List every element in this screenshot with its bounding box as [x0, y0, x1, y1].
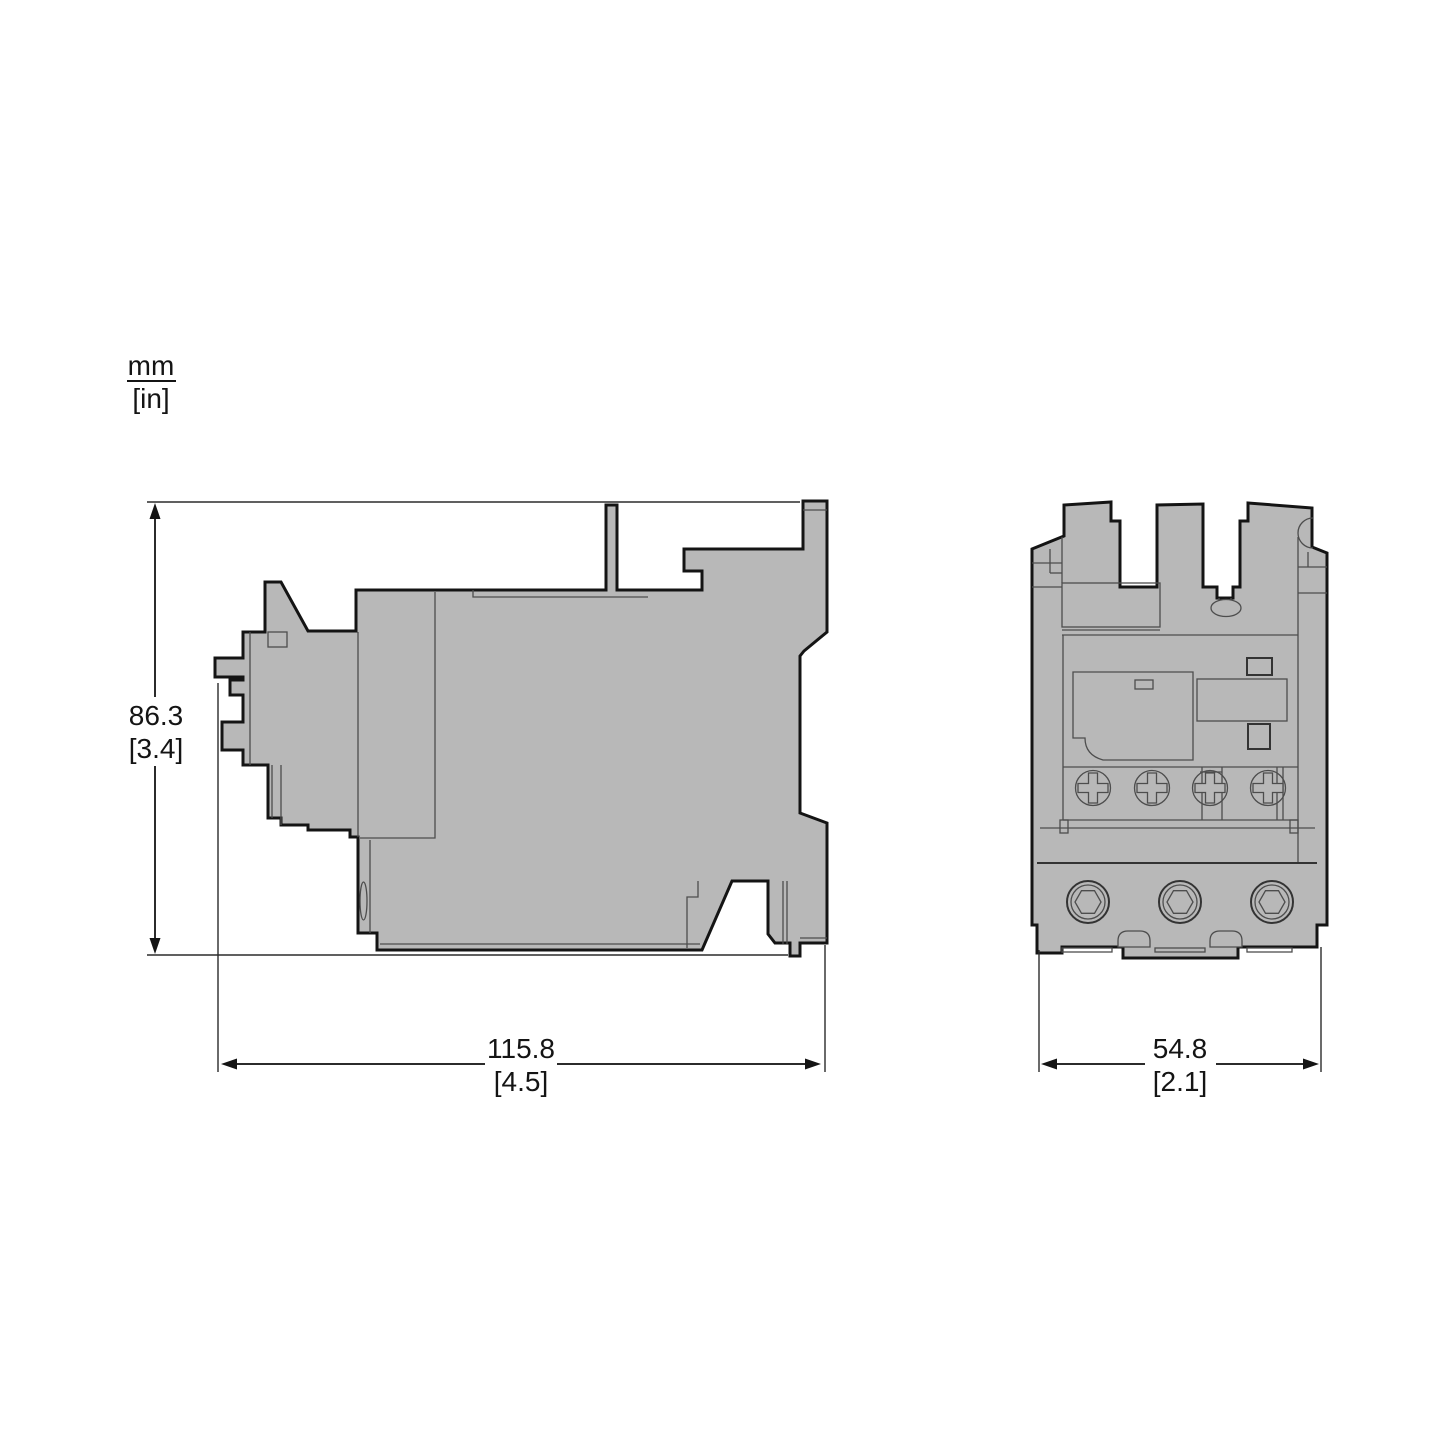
height-dim-in: [3.4] — [129, 733, 183, 764]
front-width-dimension: 54.8 [2.1] — [1039, 947, 1321, 1097]
height-dim-mm: 86.3 — [129, 700, 184, 731]
phillips-screw — [1135, 771, 1170, 806]
phillips-screw — [1076, 771, 1111, 806]
front-bottom-bump-left — [1118, 931, 1150, 947]
arrow-left-icon — [221, 1059, 237, 1070]
phillips-screw — [1193, 771, 1228, 806]
front-top-oval — [1211, 600, 1241, 617]
front-width-dim-mm: 54.8 — [1153, 1033, 1208, 1064]
arrow-right-icon — [1303, 1059, 1319, 1070]
side-width-dim-in: [4.5] — [494, 1066, 548, 1097]
arrow-right-icon — [805, 1059, 821, 1070]
phillips-screw — [1251, 771, 1286, 806]
side-view — [215, 501, 827, 956]
arrow-down-icon — [150, 938, 161, 954]
side-view-outline — [215, 501, 827, 956]
dimension-drawing-page: mm [in] — [0, 0, 1445, 1445]
front-bottom-slot-3 — [1247, 948, 1292, 952]
front-width-dim-in: [2.1] — [1153, 1066, 1207, 1097]
side-width-dim-mm: 115.8 — [487, 1033, 555, 1064]
units-in-label: [in] — [132, 383, 169, 414]
units-mm-label: mm — [128, 350, 175, 381]
front-bottom-bump-right — [1210, 931, 1242, 947]
front-view — [1032, 502, 1327, 958]
arrow-left-icon — [1041, 1059, 1057, 1070]
technical-drawing: mm [in] — [0, 0, 1445, 1445]
arrow-up-icon — [150, 503, 161, 519]
units-label: mm [in] — [127, 350, 176, 414]
front-bottom-slot-1 — [1062, 948, 1112, 952]
